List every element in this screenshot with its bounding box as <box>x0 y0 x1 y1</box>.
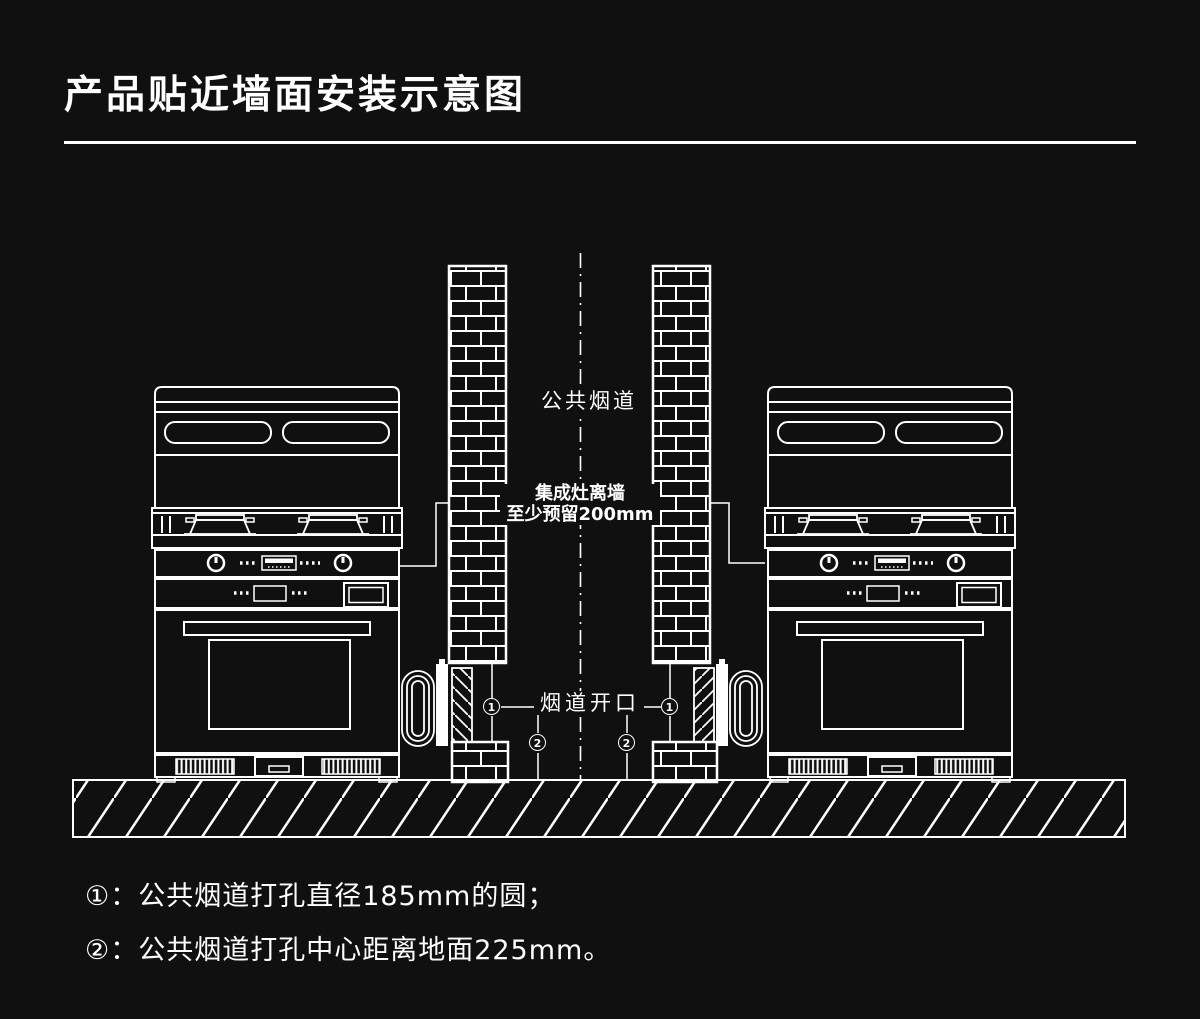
right-flue-wall <box>653 266 710 663</box>
footnotes: ①：公共烟道打孔直径185mm的圆； ②：公共烟道打孔中心距离地面225mm。 <box>85 874 611 982</box>
marker-2-right: 2 <box>618 734 635 751</box>
label-wall-clearance-line1: 集成灶离墙 <box>500 484 660 505</box>
clearance-leader-left <box>400 503 449 566</box>
right-exhaust-duct <box>730 671 762 746</box>
label-wall-clearance-line2: 至少预留200mm <box>500 505 660 526</box>
diagram-canvas: 产品贴近墙面安装示意图 <box>0 0 1200 1019</box>
left-wall-flange <box>436 659 448 746</box>
label-public-flue: 公共烟道 <box>537 389 641 413</box>
left-flue-base <box>452 742 508 782</box>
marker-2-left: 2 <box>529 734 546 751</box>
left-exhaust-duct <box>402 671 434 746</box>
marker-1-right: 1 <box>661 698 678 715</box>
left-flue-wall <box>449 266 506 663</box>
floor-hatch <box>73 780 1125 837</box>
left-wall-opening-hatch <box>452 668 472 742</box>
right-wall-flange <box>716 659 728 746</box>
right-flue-base <box>653 742 717 782</box>
right-wall-opening-hatch <box>694 668 714 742</box>
right-stove <box>765 387 1015 782</box>
label-flue-opening: 烟道开口 <box>536 691 644 715</box>
left-stove <box>152 387 402 782</box>
footnote-2: ②：公共烟道打孔中心距离地面225mm。 <box>85 928 611 967</box>
marker-1-left: 1 <box>483 698 500 715</box>
label-wall-clearance: 集成灶离墙 至少预留200mm <box>500 484 660 525</box>
footnote-1: ①：公共烟道打孔直径185mm的圆； <box>85 874 611 913</box>
clearance-leader-right <box>711 503 765 563</box>
